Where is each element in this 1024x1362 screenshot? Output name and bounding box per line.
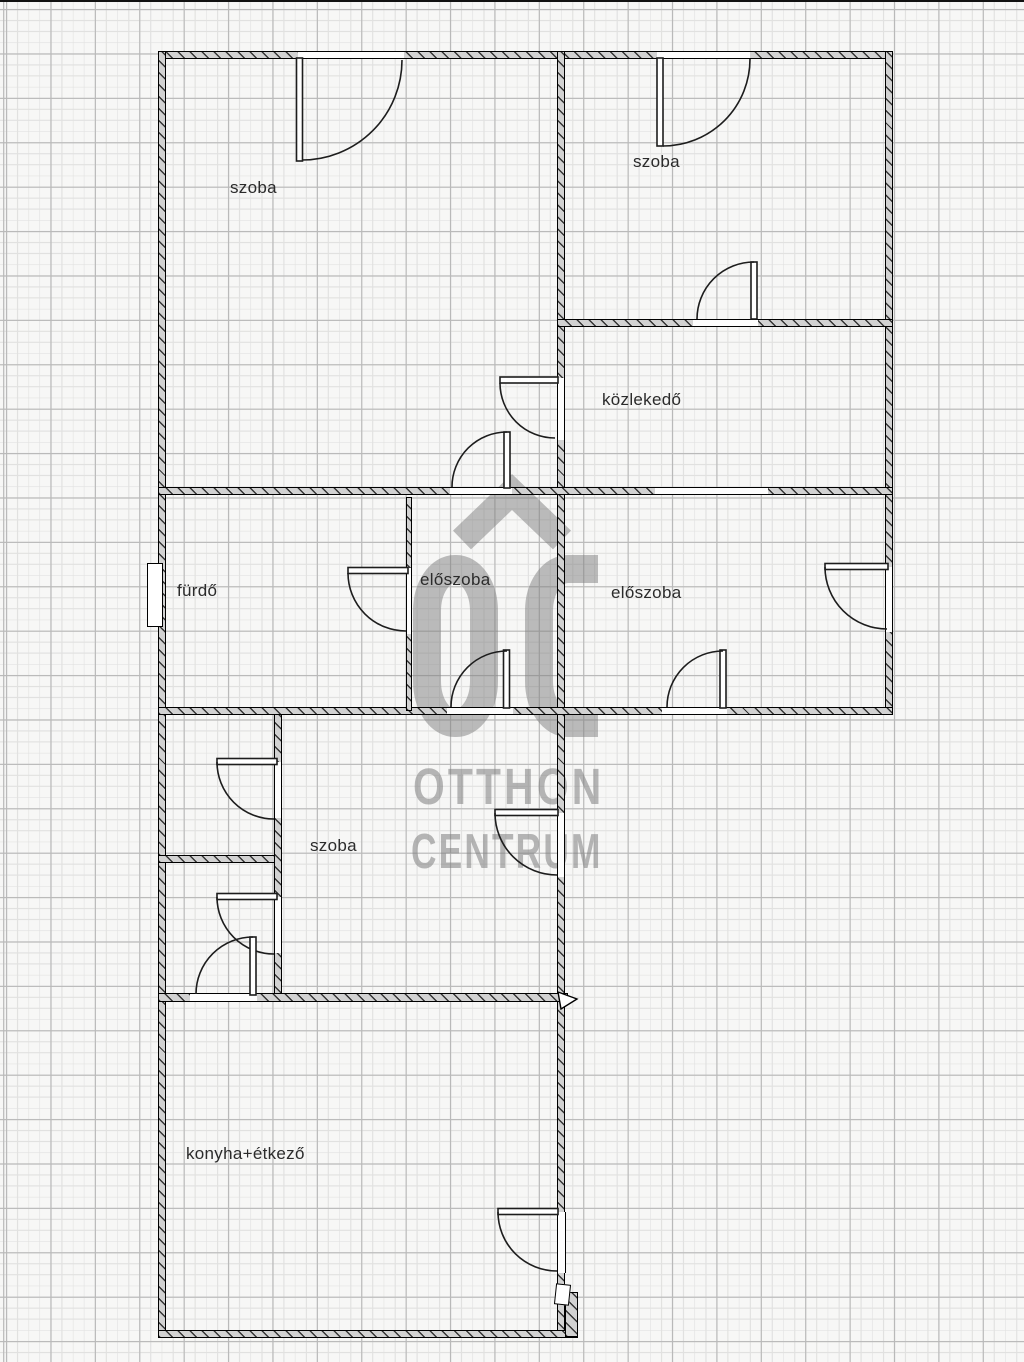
watermark-text-otthon: OTTHON (413, 757, 604, 816)
door-opening (657, 51, 750, 59)
door-arc (663, 59, 750, 146)
room-label-szoba-top-left: szoba (230, 178, 277, 198)
wall-top-outer (158, 51, 893, 59)
room-label-furdo: fürdő (177, 581, 217, 601)
door-arc (667, 651, 723, 707)
wall-center-vertical (557, 51, 565, 1337)
door-opening (885, 567, 893, 632)
top-border-line (0, 0, 1024, 2)
door-opening (693, 319, 758, 327)
floorplan-canvas: OTTHON CENTRUM (0, 0, 1024, 1362)
door-opening (447, 707, 513, 715)
watermark-monogram (0, 0, 1024, 1362)
wall-konyha-bottom (158, 1330, 578, 1338)
door-arc (217, 762, 274, 819)
watermark-roof-chevron-icon (462, 492, 562, 540)
wall-smallrooms-divider (158, 855, 282, 863)
wall-horizontal-mid1 (158, 487, 893, 495)
wall-niche (554, 1283, 571, 1305)
door-opening (450, 487, 512, 495)
door-leaf (504, 432, 510, 488)
door-arc (495, 813, 557, 875)
door-opening (557, 813, 565, 877)
watermark-letter-c (539, 569, 598, 723)
door-arc (196, 937, 253, 994)
wall-smallrooms-right (274, 714, 282, 1001)
door-opening (190, 993, 257, 1002)
door-leaf (498, 1209, 558, 1215)
door-arc (217, 897, 274, 954)
door-leaf (720, 650, 726, 708)
door-arc (500, 383, 555, 438)
door-opening (274, 762, 282, 818)
window (147, 563, 163, 627)
door-arc (348, 573, 406, 631)
wall-left-outer (158, 51, 166, 1337)
wall-horizontal-mid2 (158, 707, 893, 715)
door-leaf (217, 759, 277, 765)
door-opening (662, 707, 727, 715)
door-leaf (751, 262, 757, 319)
room-label-eloszoba-left: előszoba (420, 570, 490, 590)
room-label-eloszoba-right: előszoba (611, 583, 681, 603)
door-arc (452, 432, 507, 487)
door-leaf (348, 568, 408, 574)
doors-layer (0, 0, 1024, 1362)
door-leaf (825, 564, 888, 570)
door-opening (274, 897, 282, 953)
door-arc (697, 262, 754, 319)
door-opening (557, 1212, 566, 1273)
wall-opening-passage (655, 487, 768, 495)
door-leaf (657, 58, 663, 146)
door-leaf (250, 937, 256, 995)
door-leaf (297, 58, 303, 161)
door-opening (298, 51, 404, 59)
room-label-konyha-etkezo: konyha+étkező (186, 1144, 305, 1164)
room-label-szoba-middle: szoba (310, 836, 357, 856)
door-arc (451, 651, 507, 707)
room-label-szoba-top-right: szoba (633, 152, 680, 172)
room-label-kozlekedo: közlekedő (602, 390, 681, 410)
door-leaf (217, 894, 277, 900)
door-arc (498, 1212, 557, 1271)
door-arc (302, 60, 402, 160)
door-leaf (495, 810, 558, 816)
door-leaf (504, 650, 510, 708)
door-arc (825, 567, 887, 629)
door-opening (406, 568, 412, 634)
door-opening (557, 378, 565, 440)
watermark-text-centrum: CENTRUM (411, 824, 603, 880)
watermark-letter-o (427, 569, 484, 723)
door-leaf (500, 377, 558, 383)
